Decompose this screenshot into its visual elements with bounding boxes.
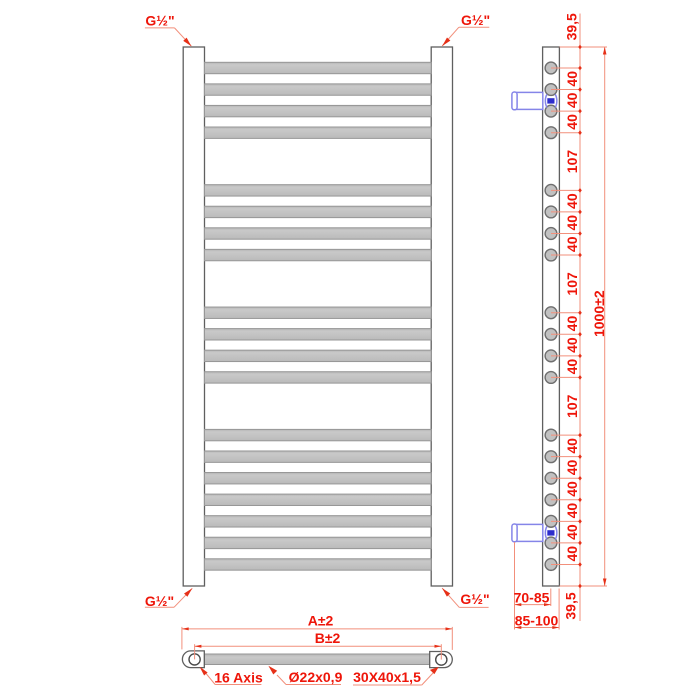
svg-text:Ø22x0,9: Ø22x0,9: [289, 669, 343, 685]
svg-text:G½": G½": [460, 591, 489, 607]
svg-text:A±2: A±2: [308, 612, 334, 628]
svg-text:107: 107: [564, 394, 580, 418]
svg-text:107: 107: [564, 272, 580, 296]
svg-text:40: 40: [564, 316, 580, 332]
svg-text:G½": G½": [145, 593, 174, 609]
svg-text:30X40x1,5: 30X40x1,5: [353, 669, 421, 685]
svg-text:40: 40: [564, 193, 580, 209]
svg-text:39,5: 39,5: [563, 592, 579, 619]
svg-text:40: 40: [564, 524, 580, 540]
svg-text:40: 40: [564, 215, 580, 231]
svg-text:85-100: 85-100: [515, 612, 559, 628]
svg-text:40: 40: [564, 337, 580, 353]
svg-text:40: 40: [564, 481, 580, 497]
svg-text:40: 40: [564, 438, 580, 454]
svg-text:39,5: 39,5: [564, 13, 580, 40]
svg-text:1000±2: 1000±2: [591, 290, 607, 337]
svg-text:40: 40: [564, 546, 580, 562]
svg-text:107: 107: [564, 150, 580, 174]
svg-text:40: 40: [564, 359, 580, 375]
svg-text:G½": G½": [145, 12, 174, 28]
svg-text:40: 40: [564, 114, 580, 130]
svg-text:16 Axis: 16 Axis: [214, 669, 263, 685]
svg-text:B±2: B±2: [315, 630, 341, 646]
svg-text:40: 40: [564, 71, 580, 87]
svg-text:40: 40: [564, 459, 580, 475]
svg-text:G½": G½": [461, 12, 490, 28]
svg-text:40: 40: [564, 503, 580, 519]
svg-text:40: 40: [564, 92, 580, 108]
svg-text:70-85: 70-85: [514, 590, 550, 606]
svg-text:40: 40: [564, 236, 580, 252]
